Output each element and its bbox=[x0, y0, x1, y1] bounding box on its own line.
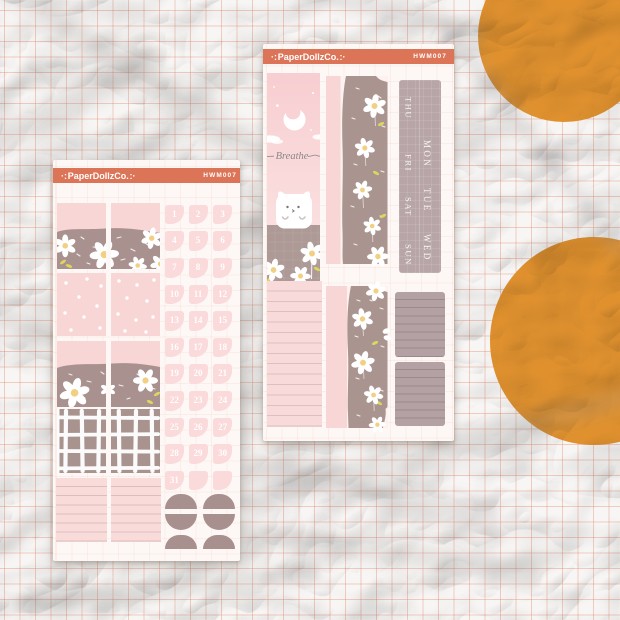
svg-text:Breathe: Breathe bbox=[276, 151, 309, 162]
